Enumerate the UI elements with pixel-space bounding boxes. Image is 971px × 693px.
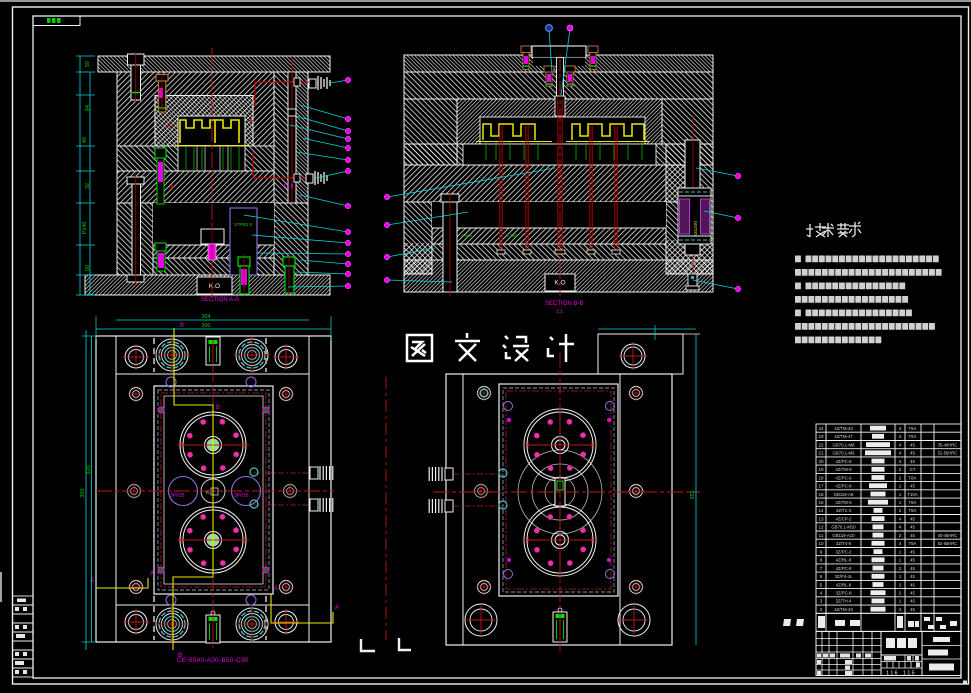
svg-text:50: 50: [85, 265, 91, 271]
svg-text:45: 45: [910, 525, 915, 530]
svg-text:3Z/PC-2: 3Z/PC-2: [836, 549, 853, 554]
svg-text:4: 4: [899, 442, 902, 447]
svg-text:B: B: [216, 405, 220, 411]
svg-text:4Z/TM-43: 4Z/TM-43: [834, 426, 853, 431]
svg-text:4Z/CP-2: 4Z/CP-2: [836, 516, 853, 521]
svg-text:B: B: [180, 323, 184, 329]
svg-text:3Z/PC-8: 3Z/PC-8: [836, 591, 853, 596]
svg-text:6: 6: [820, 574, 823, 579]
svg-text:T8A: T8A: [909, 426, 917, 431]
svg-text:SECTION A-A: SECTION A-A: [201, 297, 239, 303]
svg-text:CE-8540-A00-B50-C90: CE-8540-A00-B50-C90: [177, 657, 249, 664]
svg-text:45: 45: [910, 566, 915, 571]
svg-text:4Z/PC-6: 4Z/PC-6: [836, 475, 853, 480]
svg-text:11: 11: [819, 533, 824, 538]
svg-text:16: 16: [818, 492, 824, 497]
svg-text:2: 2: [899, 508, 902, 513]
svg-text:T10A: T10A: [907, 492, 917, 497]
svg-text:13: 13: [818, 516, 824, 521]
svg-text:45: 45: [910, 484, 915, 489]
svg-text:300: 300: [201, 323, 210, 329]
svg-text:GB70.1-M8: GB70.1-M8: [833, 442, 856, 447]
svg-text:45: 45: [910, 516, 915, 521]
svg-text:15: 15: [818, 500, 824, 505]
svg-text:4Z/TM-5: 4Z/TM-5: [835, 500, 852, 505]
svg-text:4: 4: [899, 516, 902, 521]
svg-text:1: 1: [899, 484, 902, 489]
svg-text:3Z/P4-4L: 3Z/P4-4L: [835, 574, 853, 579]
svg-text:GT: GT: [910, 467, 916, 472]
svg-text:SECTION B-B: SECTION B-B: [545, 301, 583, 307]
svg-text:12: 12: [818, 525, 824, 530]
svg-text:4: 4: [899, 459, 902, 464]
svg-text:3Z/T4-8: 3Z/T4-8: [836, 541, 852, 546]
svg-text:45: 45: [910, 451, 915, 456]
svg-text:2: 2: [820, 607, 823, 612]
svg-text:GB119-A8: GB119-A8: [834, 492, 854, 497]
svg-text:45: 45: [910, 442, 915, 447]
svg-text:3: 3: [820, 599, 823, 604]
svg-text:4: 4: [899, 434, 902, 439]
svg-text:A3.8: A3.8: [283, 184, 294, 190]
svg-text:4Z/RL-8: 4Z/RL-8: [836, 582, 852, 587]
svg-text:21: 21: [818, 451, 824, 456]
svg-text:84: 84: [85, 105, 91, 111]
svg-text:4Z/PC-8: 4Z/PC-8: [836, 459, 853, 464]
svg-text:9: 9: [820, 549, 823, 554]
svg-text:35-40HRC: 35-40HRC: [938, 442, 957, 447]
svg-text:2: 2: [899, 591, 902, 596]
svg-text:14: 14: [818, 508, 824, 513]
svg-text:P140: P140: [82, 222, 88, 235]
svg-text:4Z/PC-8: 4Z/PC-8: [836, 566, 853, 571]
svg-text:17: 17: [818, 484, 824, 489]
svg-text:2: 2: [899, 475, 902, 480]
svg-text:24: 24: [818, 426, 824, 431]
svg-text:4: 4: [899, 426, 902, 431]
svg-text:T8A: T8A: [909, 434, 917, 439]
svg-text:2: 2: [899, 582, 902, 587]
svg-text:1: 1: [899, 574, 902, 579]
svg-text:1: 1: [899, 549, 902, 554]
svg-text:1: 1: [899, 599, 902, 604]
svg-text:4-M8: 4-M8: [506, 233, 517, 239]
svg-text:52-56HRC: 52-56HRC: [938, 541, 957, 546]
svg-text:3P#35: 3P#35: [170, 493, 185, 499]
svg-text:22: 22: [818, 442, 824, 447]
svg-text:45: 45: [910, 549, 915, 554]
svg-text:4Z/TM-8: 4Z/TM-8: [835, 467, 852, 472]
svg-text:20: 20: [818, 459, 824, 464]
svg-text:GB70.1-M6: GB70.1-M6: [833, 451, 856, 456]
svg-text:19: 19: [818, 467, 824, 472]
svg-text:3P#35: 3P#35: [234, 493, 249, 499]
svg-text:17P63 5: 17P63 5: [234, 222, 252, 228]
svg-text:1:1: 1:1: [556, 309, 563, 315]
svg-text:4-M8: 4-M8: [461, 233, 472, 239]
svg-text:A: A: [274, 586, 278, 592]
svg-text:4Z/TM-43: 4Z/TM-43: [834, 607, 853, 612]
svg-text:45: 45: [910, 582, 915, 587]
svg-text:45: 45: [910, 533, 915, 538]
svg-text:1: 1: [899, 500, 902, 505]
svg-text:45: 45: [910, 574, 915, 579]
svg-text:40-45HRC: 40-45HRC: [938, 533, 957, 538]
svg-text:355: 355: [690, 490, 696, 499]
svg-text:50: 50: [85, 61, 91, 67]
svg-text:18: 18: [818, 475, 824, 480]
svg-text:3Z/TH-4: 3Z/TH-4: [836, 599, 852, 604]
svg-text:2: 2: [899, 467, 902, 472]
svg-text:45: 45: [910, 599, 915, 604]
svg-text:23: 23: [818, 434, 824, 439]
svg-text:2: 2: [899, 533, 902, 538]
svg-text:4: 4: [899, 525, 902, 530]
svg-text:4: 4: [899, 541, 902, 546]
svg-text:A: A: [150, 571, 154, 577]
svg-text:T8A: T8A: [909, 500, 917, 505]
svg-text:320: 320: [86, 465, 92, 474]
svg-text:T8A: T8A: [909, 475, 917, 480]
svg-text:32: 32: [85, 183, 91, 189]
svg-text:4: 4: [899, 607, 902, 612]
svg-text:7: 7: [820, 566, 823, 571]
svg-text:2: 2: [899, 566, 902, 571]
svg-text:A: A: [90, 578, 94, 584]
svg-text:A: A: [335, 605, 339, 611]
svg-text:4: 4: [899, 451, 902, 456]
svg-text:3Z/T1-3: 3Z/T1-3: [836, 508, 852, 513]
svg-text:T8A: T8A: [909, 508, 917, 513]
svg-text:45: 45: [910, 459, 915, 464]
svg-text:45: 45: [910, 607, 915, 612]
svg-text:8: 8: [820, 558, 823, 563]
svg-text:K.O: K.O: [209, 283, 220, 290]
svg-text:5: 5: [820, 582, 823, 587]
svg-text:1 1 5: 1 1 5: [903, 671, 915, 677]
svg-text:T8A: T8A: [909, 541, 917, 546]
svg-text:45: 45: [910, 558, 915, 563]
svg-text:1: 1: [899, 492, 902, 497]
svg-text:40: 40: [82, 137, 88, 143]
svg-text:GB119-A10: GB119-A10: [832, 533, 855, 538]
svg-text:4Z/TM-47: 4Z/TM-47: [834, 434, 853, 439]
svg-text:4Z/RL-8: 4Z/RL-8: [836, 558, 852, 563]
svg-text:GB70.1-M10: GB70.1-M10: [831, 525, 856, 530]
svg-text:350: 350: [80, 488, 86, 497]
svg-text:10: 10: [818, 541, 824, 546]
svg-text:1: 1: [899, 558, 902, 563]
svg-text:364: 364: [201, 314, 210, 320]
svg-text:52-56HRC: 52-56HRC: [938, 451, 957, 456]
svg-text:45: 45: [910, 591, 915, 596]
svg-text:4Z/PC-8: 4Z/PC-8: [836, 484, 853, 489]
svg-text:1 1 6: 1 1 6: [886, 671, 898, 677]
svg-text:4: 4: [820, 591, 823, 596]
